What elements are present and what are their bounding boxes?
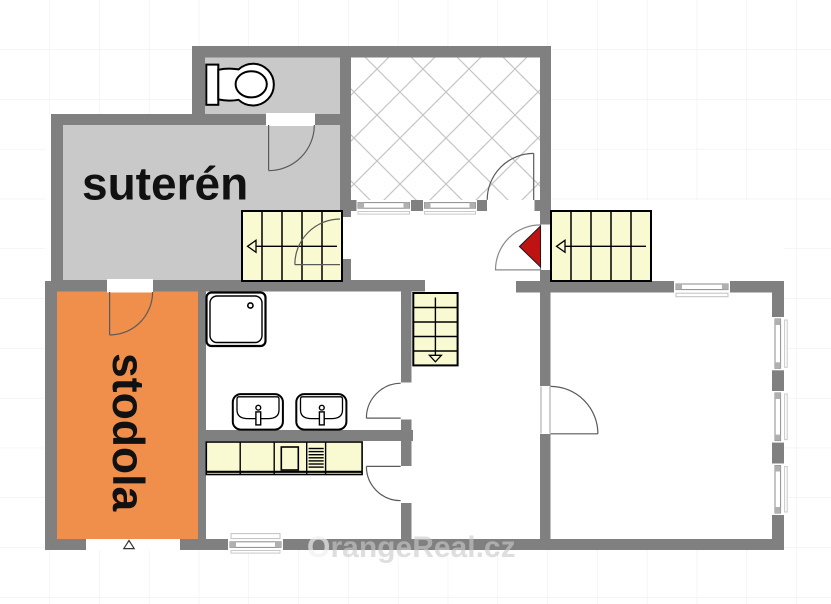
svg-text:rangeReal.cz: rangeReal.cz	[331, 531, 516, 564]
svg-text:stodola: stodola	[103, 353, 152, 512]
svg-text:suterén: suterén	[82, 158, 248, 210]
svg-text:O: O	[307, 531, 330, 564]
